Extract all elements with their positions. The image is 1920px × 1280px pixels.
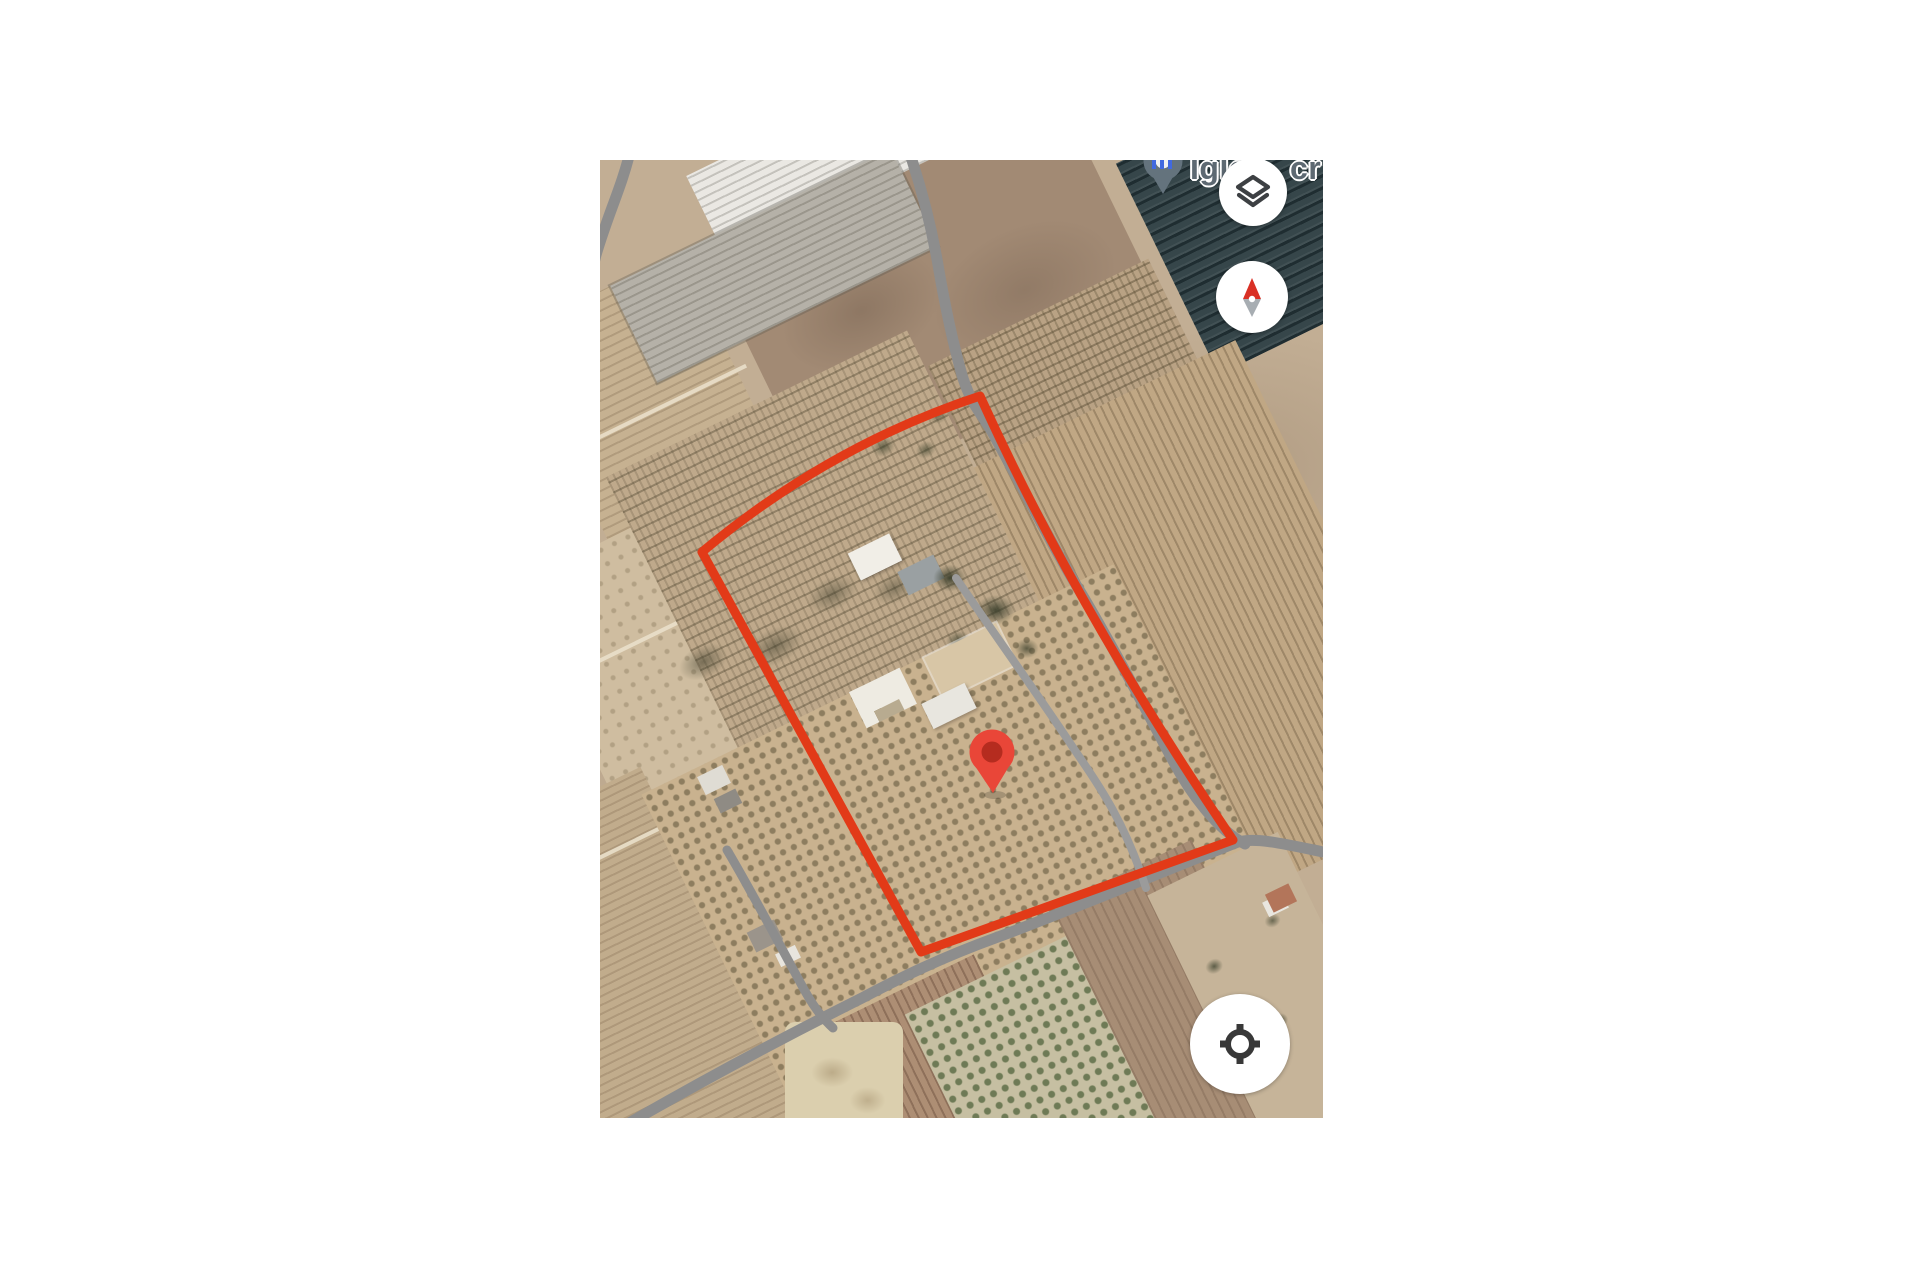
road-left-curve <box>600 160 630 328</box>
road-main <box>910 160 1245 844</box>
layers-button[interactable] <box>1219 160 1287 226</box>
map-overlay-svg <box>600 160 1323 1118</box>
clipped-blue-label <box>1152 160 1176 169</box>
my-location-button[interactable] <box>1190 994 1290 1094</box>
my-location-icon <box>1208 1012 1272 1076</box>
road-short-west <box>727 850 833 1028</box>
parcel-boundary-polygon <box>702 396 1233 952</box>
layers-icon <box>1231 170 1275 214</box>
poi-label-fragment-right[interactable]: cr <box>1290 160 1321 187</box>
screenshot-stage: Igle cr <box>0 0 1920 1280</box>
location-pin-icon[interactable] <box>970 730 1015 800</box>
satellite-map-viewport[interactable]: Igle cr <box>600 160 1323 1118</box>
compass-button[interactable] <box>1216 261 1288 333</box>
compass-needle-icon <box>1228 273 1276 321</box>
